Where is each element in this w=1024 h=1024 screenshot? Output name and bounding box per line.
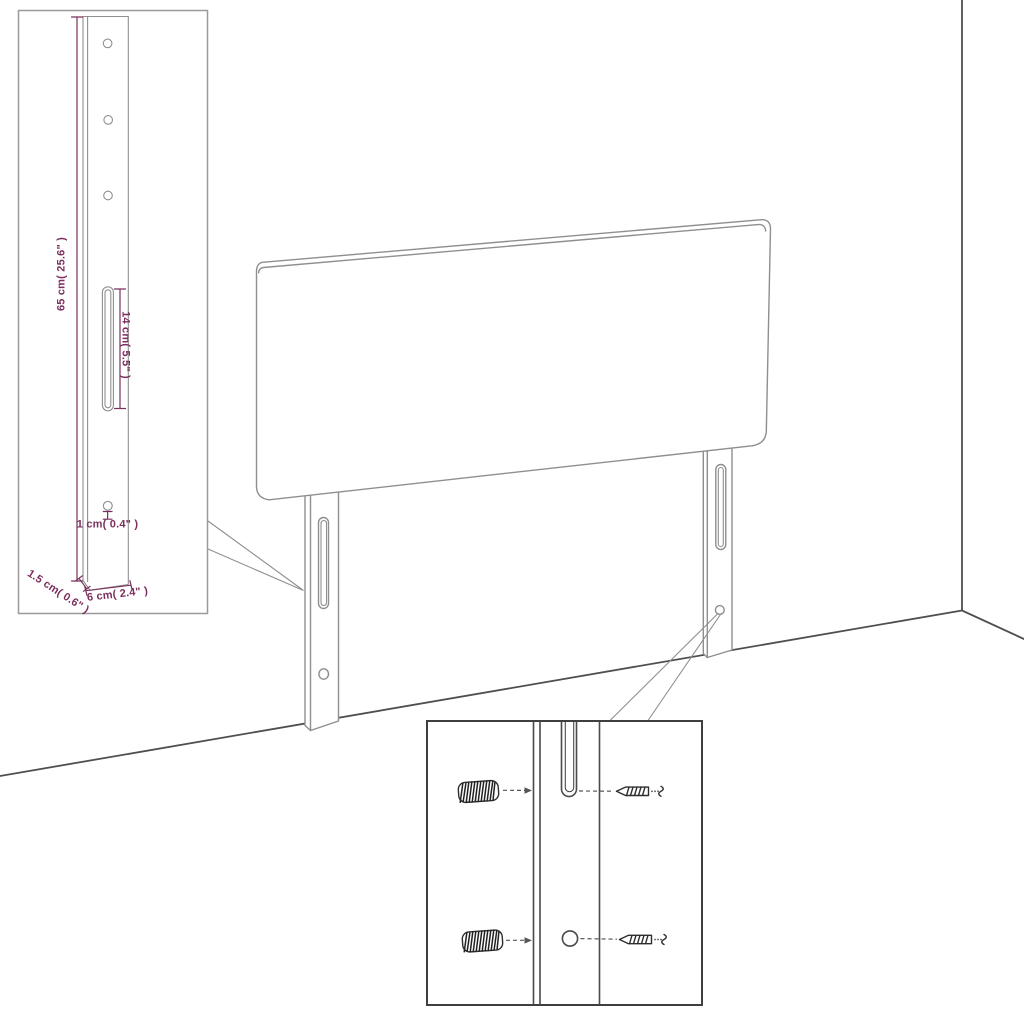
dimension-label-height: 65 cm( 25.6" ) — [55, 237, 67, 311]
right-mounting-leg — [703, 438, 732, 658]
callout-lines-left — [208, 521, 304, 591]
dimension-label-slot: 14 cm( 5.5" ) — [120, 311, 132, 379]
diagram-canvas: 65 cm( 25.6" ) 14 cm( 5.5" ) 1 cm( 0.4" … — [0, 0, 1024, 1024]
floor-line-right — [962, 611, 1024, 640]
leg-inset-callout-lines — [208, 521, 304, 591]
headboard-assembly-diagram: 65 cm( 25.6" ) 14 cm( 5.5" ) 1 cm( 0.4" … — [0, 0, 1024, 1024]
dimension-label-hole: 1 cm( 0.4" ) — [77, 518, 139, 530]
hardware-detail-inset — [427, 721, 702, 1005]
leg-detail-inset: 65 cm( 25.6" ) 14 cm( 5.5" ) 1 cm( 0.4" … — [19, 11, 208, 617]
headboard-panel — [256, 220, 770, 500]
hardware-inset-box — [427, 721, 702, 1005]
left-mounting-leg — [305, 468, 339, 731]
